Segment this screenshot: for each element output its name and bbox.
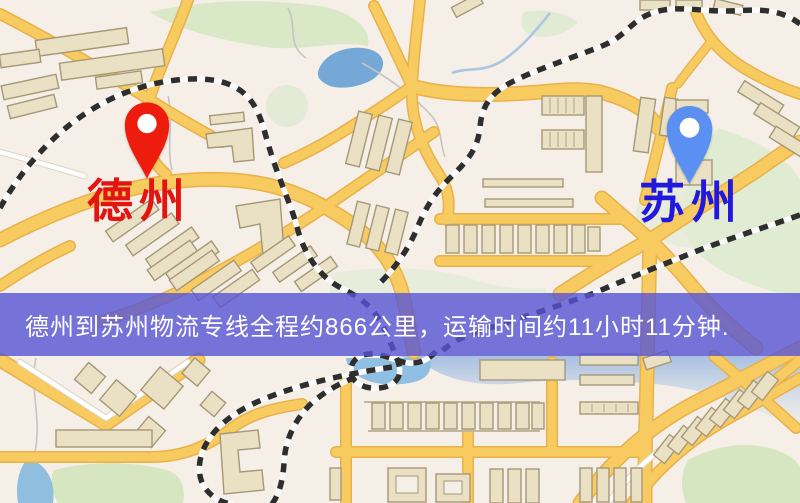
origin-pin-icon[interactable]	[120, 97, 174, 181]
destination-pin-body	[667, 106, 712, 184]
building-strip-center	[446, 225, 600, 253]
destination-pin-icon[interactable]	[661, 101, 718, 186]
origin-label: 德州	[87, 178, 191, 224]
map-view[interactable]: 德州 苏州 德州到苏州物流专线全程约866公里，运输时间约11小时11分钟.	[0, 0, 800, 503]
map-background	[0, 0, 800, 503]
origin-pin-hole	[137, 114, 156, 133]
origin-pin-body	[125, 102, 169, 178]
route-info-text: 德州到苏州物流专线全程约866公里，运输时间约11小时11分钟.	[0, 307, 730, 342]
route-info-banner: 德州到苏州物流专线全程约866公里，运输时间约11小时11分钟.	[0, 293, 800, 356]
destination-pin-hole	[680, 118, 700, 138]
destination-label: 苏州	[639, 179, 743, 225]
